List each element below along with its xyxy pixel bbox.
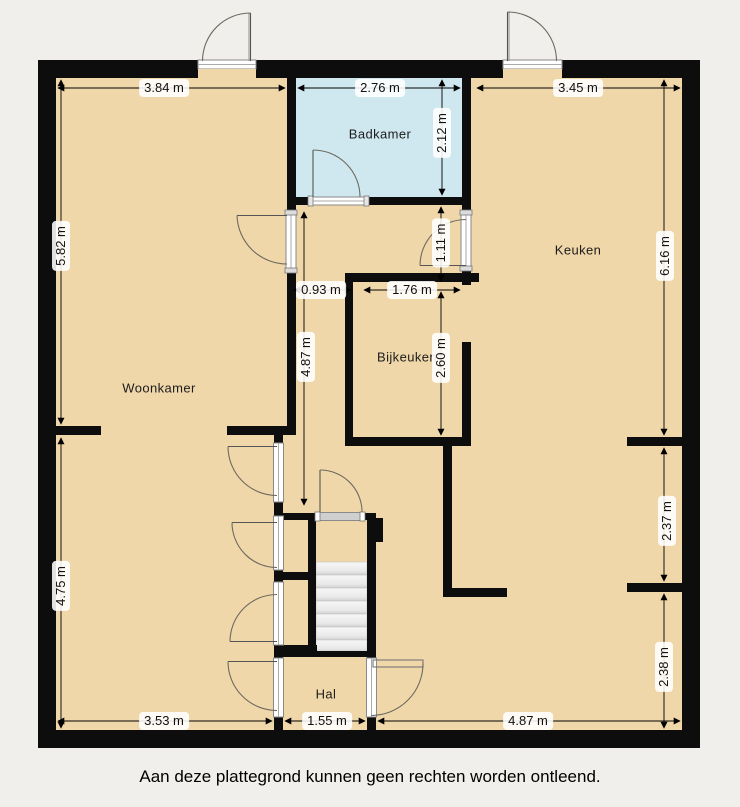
wall-top bbox=[38, 60, 198, 78]
wall-closet-divider bbox=[283, 572, 316, 580]
wall-bottom bbox=[38, 730, 700, 748]
wall-stair-left bbox=[308, 513, 316, 655]
dim-label-badkamer-width: 2.76 m bbox=[355, 79, 405, 97]
stair-door-frame bbox=[318, 513, 362, 521]
dim-label-right-middle: 2.37 m bbox=[658, 496, 676, 546]
wall-corridor bbox=[274, 570, 283, 582]
wall-woonkamer-right bbox=[287, 270, 296, 435]
stair-tread bbox=[316, 562, 367, 575]
wall-bijkeuken-left bbox=[345, 273, 353, 446]
stair-tread bbox=[316, 588, 367, 601]
wall-badkamer-right bbox=[462, 77, 471, 213]
dim-label-right-lower: 2.38 m bbox=[655, 642, 673, 692]
dim-label-corridor-width: 0.93 m bbox=[296, 281, 346, 299]
floorplan-page: 3.84 m 2.76 m 3.45 m 2.12 m 5.82 m 6.16 … bbox=[0, 0, 740, 807]
wall-bijkeuken-right bbox=[462, 342, 471, 446]
wall-bijkeuken-bottom bbox=[345, 437, 471, 446]
room-label-bijkeuken: Bijkeuken bbox=[377, 350, 437, 365]
wall-hal-right bbox=[367, 717, 376, 730]
dim-label-left-upper: 5.82 m bbox=[52, 221, 70, 271]
wall-stair-notch bbox=[374, 518, 383, 542]
floorplan-drawing bbox=[0, 0, 740, 760]
wall-l-vertical bbox=[443, 446, 452, 597]
door-arc bbox=[508, 12, 557, 61]
stair-tread bbox=[316, 601, 367, 614]
wall-top bbox=[562, 60, 700, 78]
disclaimer-text: Aan deze plattegrond kunnen geen rechten… bbox=[0, 767, 740, 787]
wall-stub-right-lower bbox=[627, 583, 682, 592]
room-label-badkamer: Badkamer bbox=[349, 127, 411, 142]
wall-corridor bbox=[274, 502, 283, 516]
dim-label-keuken-height: 6.16 m bbox=[656, 231, 674, 281]
wall-stub-left bbox=[56, 426, 101, 435]
dim-label-keuken-door: 1.11 m bbox=[432, 219, 450, 268]
room-label-woonkamer: Woonkamer bbox=[122, 381, 195, 396]
wall-stub-mid bbox=[227, 426, 296, 435]
stair-tread bbox=[316, 627, 367, 640]
wall-stub-right-upper bbox=[627, 437, 682, 446]
door-arc bbox=[203, 13, 251, 61]
room-label-keuken: Keuken bbox=[555, 243, 602, 258]
stair-tread bbox=[316, 640, 367, 652]
wall-corridor bbox=[274, 430, 283, 443]
dim-label-bijkeuken-width: 1.76 m bbox=[387, 281, 437, 299]
wall-top bbox=[256, 60, 503, 78]
dim-label-left-lower: 4.75 m bbox=[52, 561, 70, 611]
dim-label-badkamer-height: 2.12 m bbox=[433, 108, 451, 158]
dim-label-hal-width: 1.55 m bbox=[302, 712, 352, 730]
staircase bbox=[316, 562, 367, 652]
dim-label-top-left: 3.84 m bbox=[139, 79, 189, 97]
wall-left bbox=[38, 60, 56, 748]
wall-corridor bbox=[274, 645, 283, 658]
wall-right bbox=[682, 60, 700, 748]
wall-stair-bottom bbox=[308, 651, 376, 657]
stair-tread bbox=[316, 614, 367, 627]
dim-label-top-right: 3.45 m bbox=[553, 79, 603, 97]
dim-label-bottom-left: 3.53 m bbox=[139, 712, 189, 730]
dim-label-corridor-height: 4.87 m bbox=[297, 332, 315, 382]
stair-tread bbox=[316, 575, 367, 588]
wall-badkamer-bottom bbox=[365, 197, 471, 205]
dim-label-bijkeuken-height: 2.60 m bbox=[432, 333, 450, 383]
dim-label-bottom-right: 4.87 m bbox=[503, 712, 553, 730]
wall-corridor bbox=[274, 717, 283, 730]
wall-l-horizontal bbox=[443, 588, 507, 597]
room-label-hal: Hal bbox=[316, 687, 337, 702]
wall-badkamer-left bbox=[287, 77, 296, 213]
